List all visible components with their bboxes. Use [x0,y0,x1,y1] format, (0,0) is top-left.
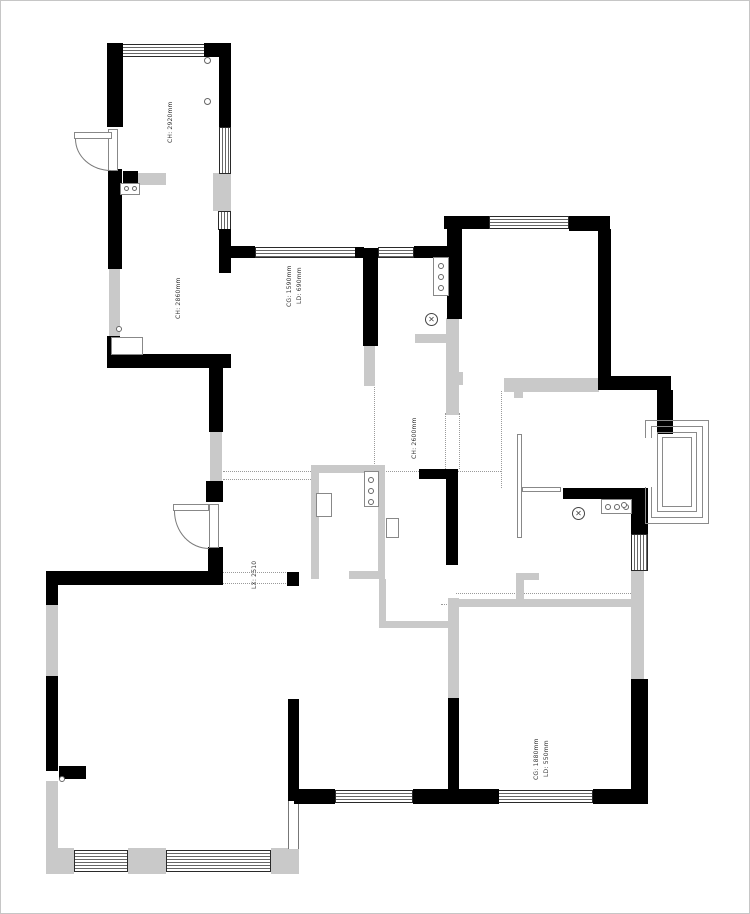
burner-icon [438,263,444,269]
counter [138,173,166,185]
light-wall-segment [631,571,644,679]
wall-segment [446,474,458,565]
wall-segment [206,481,223,502]
window [166,850,271,872]
appliance [213,173,231,211]
window [218,211,231,230]
window [122,44,205,57]
annotation-window-height: CG: 1880mm [533,738,540,780]
downlight-icon [204,98,211,105]
window [74,850,128,872]
bay-window-frame [662,437,692,507]
light-wall-segment [514,392,523,398]
window [335,790,413,803]
burner-icon [438,274,444,280]
door-jamb [209,504,219,548]
window [378,247,414,258]
ceiling-lamp-icon: ✕ [572,507,585,520]
wall-segment [413,789,449,804]
burner-icon [614,504,620,510]
light-wall-segment [448,598,459,698]
window-pillar [128,848,166,874]
bay-window-opening [643,438,655,487]
downlight-icon [116,326,122,332]
burner-icon [368,488,374,494]
light-wall-segment [504,378,599,392]
annotation-ceiling-height: CH: 2860mm [175,277,182,319]
annotation-ceiling-height: CH: 2920mm [167,101,174,143]
annotation-beam: LX: 2510 [251,561,258,589]
light-wall-segment [379,621,451,628]
wall-segment [419,469,458,479]
burner-icon [368,477,374,483]
window [489,216,569,229]
wall-segment [46,571,223,585]
door-swing-arc [75,139,111,171]
sink [120,183,140,195]
wall-segment [231,246,255,258]
wall-segment [593,789,648,804]
window-sill [46,781,58,848]
burner-icon [605,504,611,510]
wall-segment [204,43,231,57]
door-swing-arc [174,511,209,549]
light-wall-segment [459,599,633,607]
room-divider [522,487,561,492]
sink-basin-icon [124,186,129,191]
light-wall-segment [415,334,449,343]
wall-segment [46,585,58,605]
bathroom-wall [311,465,319,579]
downlight-icon [621,502,627,508]
window [219,127,231,174]
window [288,801,299,849]
wall-segment [294,789,335,804]
bathroom-wall [378,465,385,579]
wall-segment [209,368,223,432]
wall-segment [444,216,489,229]
floor-plan-canvas: ✕ ✕ CH: 2920mm CH: 2860mm CG: 1590mm LD:… [0,0,750,914]
wall-segment [288,699,299,801]
burner-icon [438,285,444,291]
window-sill [46,604,58,676]
toilet [316,493,332,517]
wall-segment [108,354,231,368]
window-pillar [46,848,74,874]
room-divider [517,434,522,538]
wall-segment [219,229,231,273]
reference-line [445,413,446,469]
downlight-icon [204,57,211,64]
reference-line [501,391,502,488]
annotation-window-height: CG: 1590mm [286,265,293,307]
door-leaf [74,132,112,139]
reference-line [223,479,319,480]
wall-segment [598,376,671,390]
window [631,534,648,571]
annotation-ceiling-height: CH: 2600mm [411,417,418,459]
burner-icon [368,499,374,505]
sink-basin-icon [132,186,137,191]
downlight-icon [59,776,65,782]
light-wall-segment [446,318,459,415]
window [498,790,593,803]
light-wall-segment [516,573,524,602]
reference-line [459,413,460,469]
wall-segment [107,43,123,127]
ceiling-lamp-icon: ✕ [425,313,438,326]
closet [111,337,143,355]
annotation-window-sill: LD: 550mm [543,740,550,777]
wall-segment [448,698,459,793]
wall-segment [631,679,648,804]
window-pillar [271,848,299,874]
wall-segment [363,248,378,346]
reference-line [456,593,633,594]
wall-segment [209,561,223,572]
window-sill [210,432,222,481]
window [255,247,356,258]
wall-segment [287,572,299,586]
annotation-window-sill: LD: 690mm [296,267,303,304]
window-sill [364,346,375,386]
wall-segment [46,676,58,771]
wall-segment [447,219,462,319]
wall-segment [219,56,231,127]
door-leaf [173,504,209,511]
light-wall-segment [458,372,463,385]
cabinet [386,518,399,538]
wall-segment [598,229,611,379]
